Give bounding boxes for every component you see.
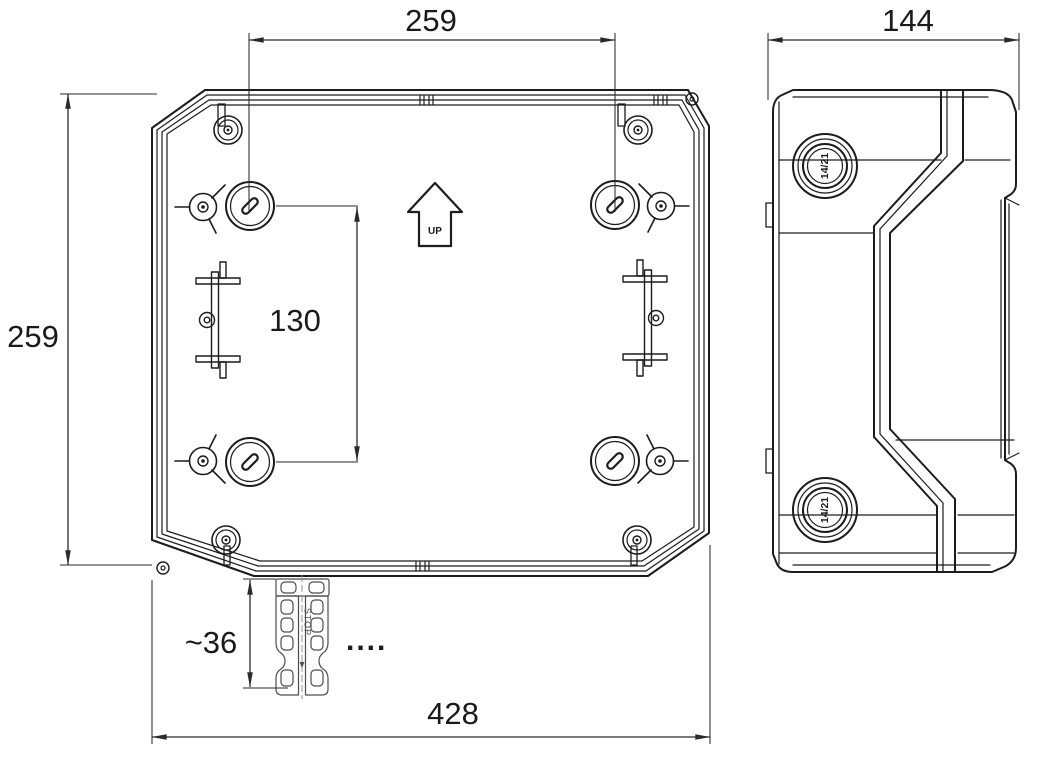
dim-vertical-hole-spacing-label: 130 xyxy=(269,303,321,338)
rail-clip-right xyxy=(623,260,667,376)
up-arrow-symbol: UP xyxy=(408,183,462,246)
dim-top-hole-spacing: 259 xyxy=(249,3,615,212)
mounting-keyhole-top-left xyxy=(226,182,274,230)
dim-left-height: 259 xyxy=(7,94,157,565)
cable-knockout-top: 14/21 xyxy=(793,134,857,198)
up-arrow-label: UP xyxy=(428,226,442,237)
side-view: 14/21 14/21 xyxy=(766,90,1019,572)
knockout-bottom-label: 14/21 xyxy=(819,497,831,523)
rail-clip-left xyxy=(196,262,240,378)
dim-side-depth-label: 144 xyxy=(882,3,934,38)
lid-screw-top-right xyxy=(624,116,652,144)
dim-bracket-height: ~36 xyxy=(185,579,288,688)
main-rear-view: UP xyxy=(152,90,709,576)
bracket-slots xyxy=(281,600,323,686)
mounting-keyhole-bottom-left xyxy=(226,438,274,486)
mounting-bracket-detail: STOP .... xyxy=(276,575,387,699)
rim-marks xyxy=(416,96,667,571)
dim-side-depth: 144 xyxy=(768,3,1019,110)
dim-total-width-label: 428 xyxy=(427,696,479,731)
side-outline-outer xyxy=(773,90,1016,572)
hinge-ear-bottom-left xyxy=(157,562,169,574)
enclosure-outline-3 xyxy=(162,100,699,566)
bracket-arrow xyxy=(300,662,305,668)
dim-bracket-height-label: ~36 xyxy=(185,625,238,660)
snap-clip-top-right xyxy=(639,184,689,232)
technical-drawing: UP xyxy=(0,0,1060,771)
dim-top-hole-spacing-label: 259 xyxy=(405,3,457,38)
enclosure-outline-2 xyxy=(157,95,704,571)
enclosure-outline-outer xyxy=(152,90,709,576)
lid-screw-top-left xyxy=(214,116,242,144)
side-parting-lines xyxy=(779,160,1014,553)
mounting-keyhole-bottom-right xyxy=(591,437,639,485)
lid-screw-bottom-left xyxy=(212,526,240,554)
knockout-top-label: 14/21 xyxy=(819,153,831,179)
snap-clip-top-left xyxy=(175,185,225,233)
cable-knockout-bottom: 14/21 xyxy=(793,478,857,542)
bracket-stop-label: STOP xyxy=(303,608,313,636)
dimensions: 259 259 130 ~36 428 xyxy=(7,3,1019,744)
dim-vertical-hole-spacing: 130 xyxy=(269,206,358,462)
lid-screw-bottom-right xyxy=(623,526,651,554)
side-outline-inner xyxy=(779,97,1019,565)
side-left-tabs xyxy=(766,203,773,473)
continuation-dots: .... xyxy=(346,624,387,657)
snap-clip-bottom-left xyxy=(175,435,225,483)
snap-clip-bottom-right xyxy=(638,435,688,483)
dim-left-height-label: 259 xyxy=(7,319,59,354)
technical-drawing-canvas: UP xyxy=(0,0,1060,771)
side-handle-channel xyxy=(874,90,963,572)
